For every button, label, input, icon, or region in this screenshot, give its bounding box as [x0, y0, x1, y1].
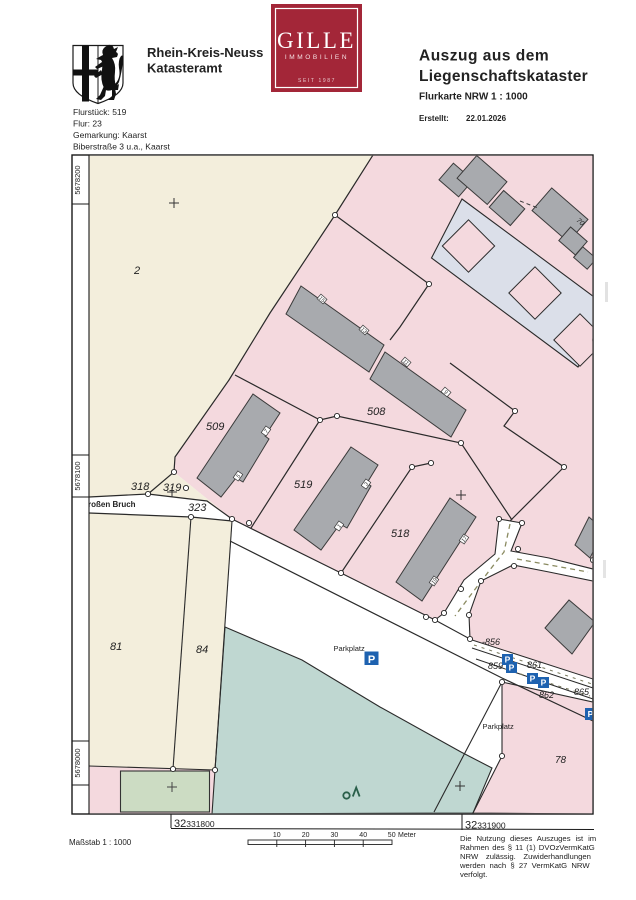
svg-text:Erstellt:: Erstellt: — [419, 114, 449, 123]
svg-text:Die Nutzung dieses Auszuges is: Die Nutzung dieses Auszuges ist im — [460, 834, 596, 843]
svg-text:Meter: Meter — [398, 832, 417, 839]
svg-text:81: 81 — [110, 641, 122, 653]
svg-text:Rhein-Kreis-Neuss: Rhein-Kreis-Neuss — [147, 45, 263, 60]
svg-text:P: P — [530, 674, 536, 684]
svg-text:30: 30 — [331, 832, 339, 839]
svg-text:865: 865 — [574, 687, 590, 697]
svg-text:519: 519 — [294, 479, 312, 491]
svg-text:P: P — [541, 678, 547, 688]
svg-text:Liegenschaftskataster: Liegenschaftskataster — [419, 68, 588, 85]
svg-text:Parkplatz: Parkplatz — [334, 644, 366, 653]
svg-text:Gemarkung: Kaarst: Gemarkung: Kaarst — [73, 130, 147, 140]
svg-text:509: 509 — [206, 421, 224, 433]
svg-text:5678100: 5678100 — [73, 461, 82, 490]
svg-text:IMMOBILIEN: IMMOBILIEN — [285, 54, 349, 61]
svg-text:Flurstück: 519: Flurstück: 519 — [73, 107, 127, 117]
svg-text:NRW zulässig. Zuwiderhandl: NRW zulässig. Zuwiderhandlungen — [460, 852, 591, 861]
svg-text:P: P — [368, 654, 375, 666]
svg-text:werden nach § 27 VermKatG: werden nach § 27 VermKatG NRW — [459, 861, 590, 870]
svg-text:roßen Bruch: roßen Bruch — [88, 500, 136, 509]
svg-text:P: P — [509, 663, 515, 673]
svg-text:859: 859 — [488, 661, 503, 671]
svg-text:323: 323 — [188, 502, 207, 514]
svg-text:2: 2 — [133, 265, 140, 277]
svg-text:Katasteramt: Katasteramt — [147, 61, 223, 76]
svg-text:508: 508 — [367, 406, 386, 418]
svg-text:319: 319 — [163, 482, 181, 494]
svg-text:Flurkarte NRW 1 : 1000: Flurkarte NRW 1 : 1000 — [419, 92, 528, 103]
svg-text:84: 84 — [196, 644, 208, 656]
svg-text:Rahmen des § 11 (1) DVOzVermKa: Rahmen des § 11 (1) DVOzVermKatG — [460, 843, 595, 852]
svg-text:318: 318 — [131, 481, 150, 493]
svg-text:40: 40 — [359, 832, 367, 839]
svg-text:Maßstab 1 : 1000: Maßstab 1 : 1000 — [69, 838, 132, 847]
svg-text:22.01.2026: 22.01.2026 — [466, 114, 507, 123]
svg-text:78: 78 — [555, 755, 567, 766]
svg-text:20: 20 — [302, 832, 310, 839]
svg-text:GILLE: GILLE — [277, 28, 356, 53]
svg-text:Flur: 23: Flur: 23 — [73, 119, 102, 129]
svg-text:32331900: 32331900 — [465, 820, 506, 832]
svg-text:50: 50 — [388, 832, 396, 839]
svg-text:Biberstraße 3 u.a., Kaarst: Biberstraße 3 u.a., Kaarst — [73, 142, 170, 152]
svg-text:862: 862 — [539, 690, 554, 700]
svg-text:verfolgt.: verfolgt. — [460, 870, 487, 879]
svg-text:Parkplatz: Parkplatz — [483, 722, 515, 731]
svg-text:SEIT 1987: SEIT 1987 — [298, 78, 336, 84]
svg-text:5678000: 5678000 — [73, 748, 82, 777]
svg-text:518: 518 — [391, 528, 410, 540]
svg-text:Auszug aus dem: Auszug aus dem — [419, 48, 549, 65]
svg-text:861: 861 — [527, 660, 542, 670]
svg-text:5678200: 5678200 — [73, 165, 82, 194]
svg-text:32331800: 32331800 — [174, 818, 215, 830]
svg-text:10: 10 — [273, 832, 281, 839]
svg-text:-856: -856 — [482, 637, 500, 647]
